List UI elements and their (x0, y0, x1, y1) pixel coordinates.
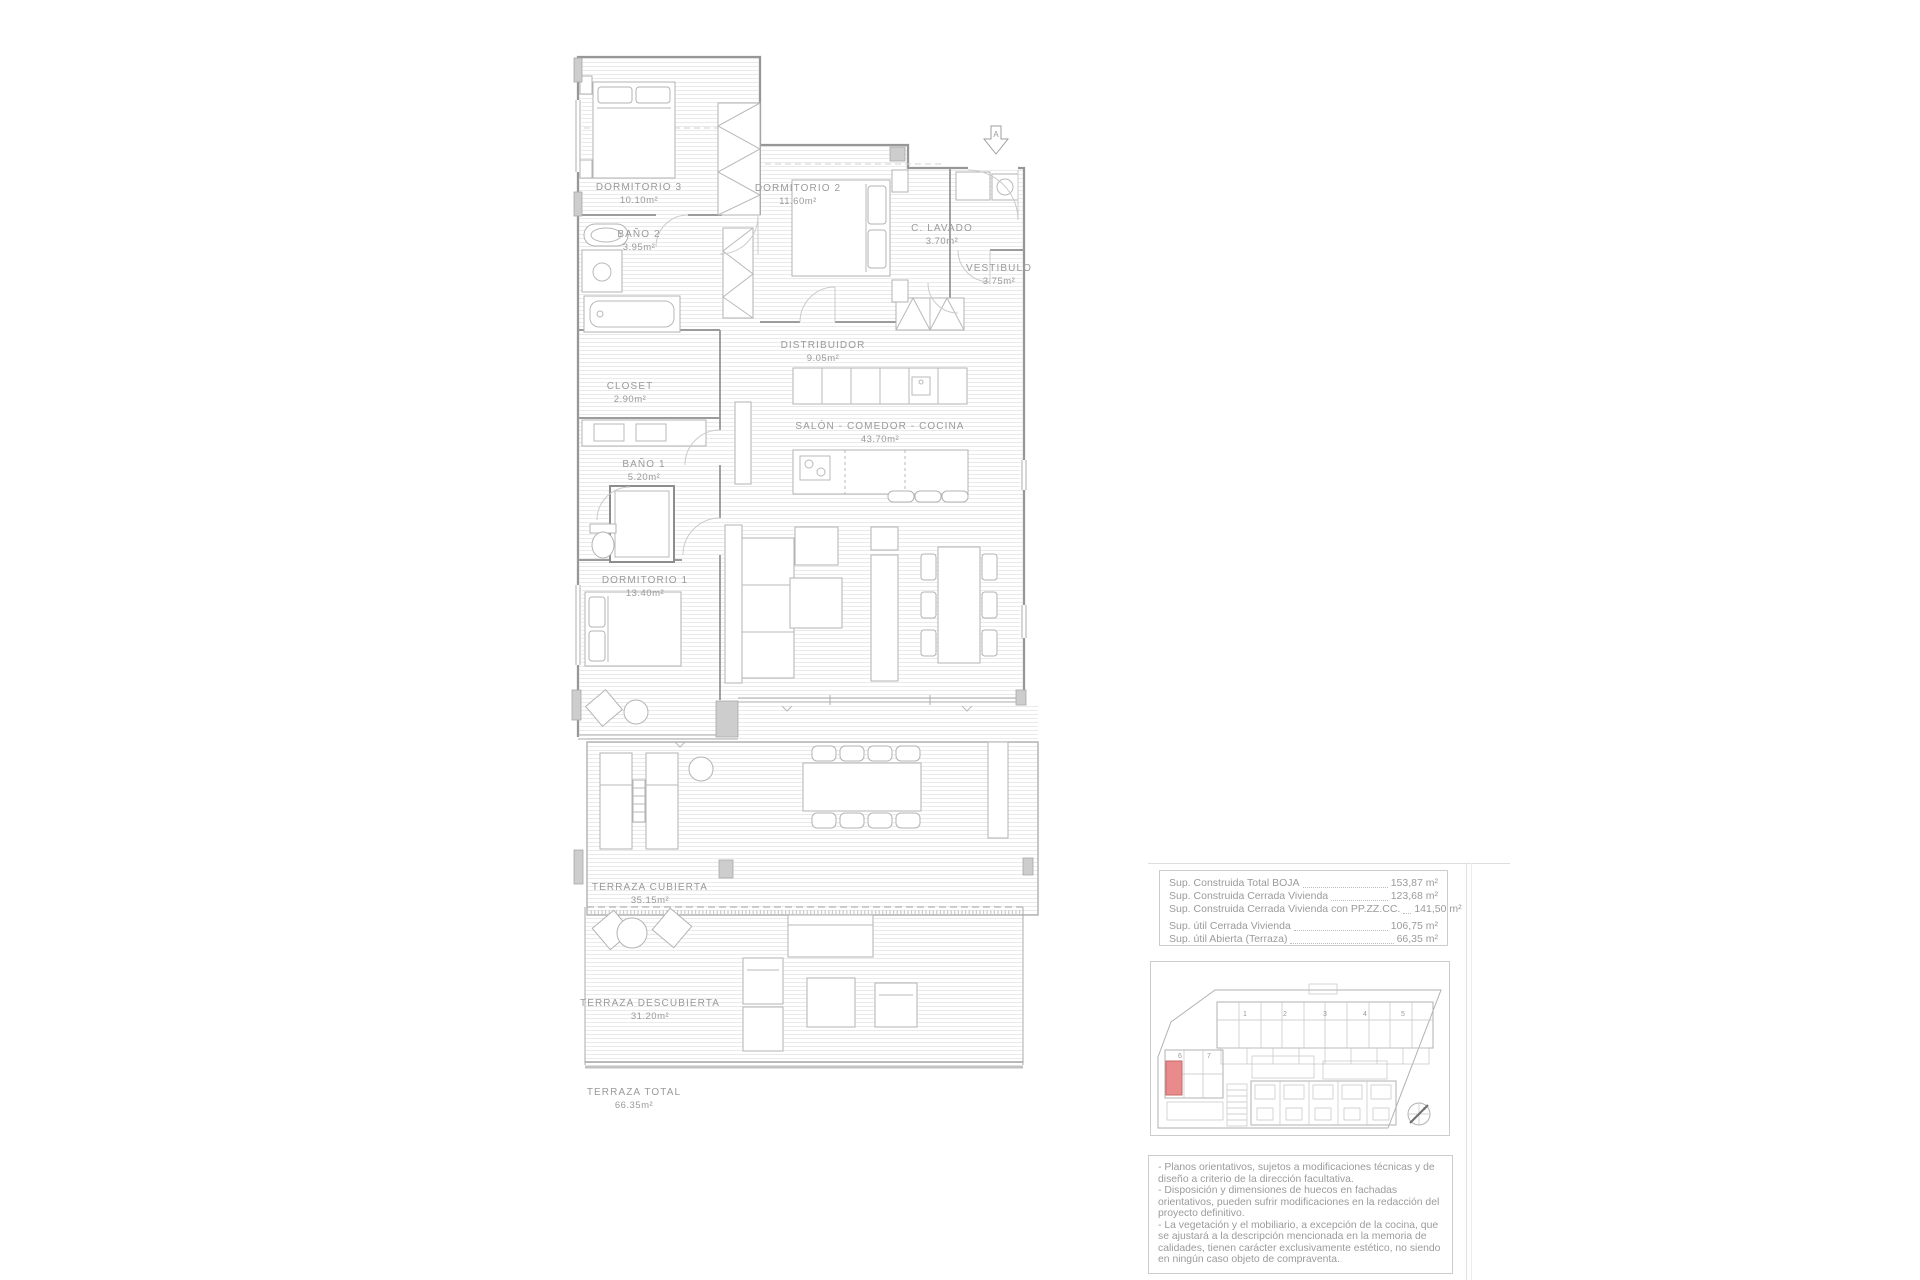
site-unit-number: 6 (1178, 1053, 1182, 1060)
site-plan-inset: 1 2 3 4 5 6 7 (1150, 961, 1450, 1136)
site-unit-number: 4 (1363, 1011, 1367, 1018)
site-unit-number: 2 (1283, 1011, 1287, 1018)
room-label-terraza-total: TERRAZA TOTAL66.35m² (587, 1087, 681, 1111)
disclaimer-line: - Planos orientativos, sujetos a modific… (1158, 1162, 1443, 1185)
bedroom3-furniture (580, 76, 675, 178)
legend-frame-top-line (1148, 863, 1510, 864)
dotted-leader (1290, 943, 1393, 944)
highlighted-unit (1166, 1061, 1182, 1095)
site-left-block: 6 7 (1165, 1050, 1223, 1120)
area-row-label: Sup. útil Abierta (Terraza) (1169, 933, 1287, 946)
area-row-label: Sup. útil Cerrada Vivienda (1169, 920, 1291, 933)
dotted-leader (1331, 900, 1388, 901)
area-row-value: 153,87 m² (1391, 877, 1438, 890)
site-lower-block (1251, 1056, 1396, 1125)
area-row-value: 106,75 m² (1391, 920, 1438, 933)
legend-frame-right-line (1466, 863, 1472, 1280)
disclaimer-line: - Disposición y dimensiones de huecos en… (1158, 1185, 1443, 1220)
area-row-label: Sup. Construida Total BOJA (1169, 877, 1300, 890)
site-stairs (1227, 1084, 1247, 1126)
area-row-value: 66,35 m² (1397, 933, 1438, 946)
dotted-leader (1303, 887, 1388, 888)
area-row-label: Sup. Construida Cerrada Vivienda con PP.… (1169, 903, 1400, 916)
dining-table-group (921, 547, 997, 663)
compass-icon (1408, 1103, 1430, 1125)
site-unit-number: 3 (1323, 1011, 1327, 1018)
site-unit-number: 1 (1243, 1011, 1247, 1018)
floor-plan: A (560, 40, 1080, 1145)
site-top-block: 1 2 3 4 5 (1217, 1002, 1433, 1064)
table-row: Sup. útil Cerrada Vivienda 106,75 m² (1169, 920, 1438, 933)
area-row-value: 123,68 m² (1391, 890, 1438, 903)
area-row-value: 141,50 m² (1414, 903, 1461, 916)
dotted-leader (1294, 930, 1388, 931)
site-unit-number: 5 (1401, 1011, 1405, 1018)
dotted-leader (1403, 913, 1411, 914)
site-boundary (1158, 990, 1441, 1128)
disclaimer-box: - Planos orientativos, sujetos a modific… (1148, 1155, 1453, 1274)
section-marker: A (984, 126, 1008, 154)
area-row-label: Sup. Construida Cerrada Vivienda (1169, 890, 1328, 903)
table-row: Sup. Construida Cerrada Vivienda con PP.… (1169, 903, 1438, 916)
table-row: Sup. Construida Total BOJA 153,87 m² (1169, 877, 1438, 890)
surface-areas-table: Sup. Construida Total BOJA 153,87 m² Sup… (1159, 870, 1448, 946)
table-row: Sup. útil Abierta (Terraza) 66,35 m² (1169, 933, 1438, 946)
site-plan-drawing: 1 2 3 4 5 6 7 (1151, 962, 1449, 1135)
disclaimer-line: - La vegetación y el mobiliario, a excep… (1158, 1220, 1443, 1266)
site-unit-number: 7 (1207, 1053, 1211, 1060)
section-marker-label: A (993, 130, 999, 139)
laundry-fixtures (956, 172, 1018, 200)
table-row: Sup. Construida Cerrada Vivienda 123,68 … (1169, 890, 1438, 903)
